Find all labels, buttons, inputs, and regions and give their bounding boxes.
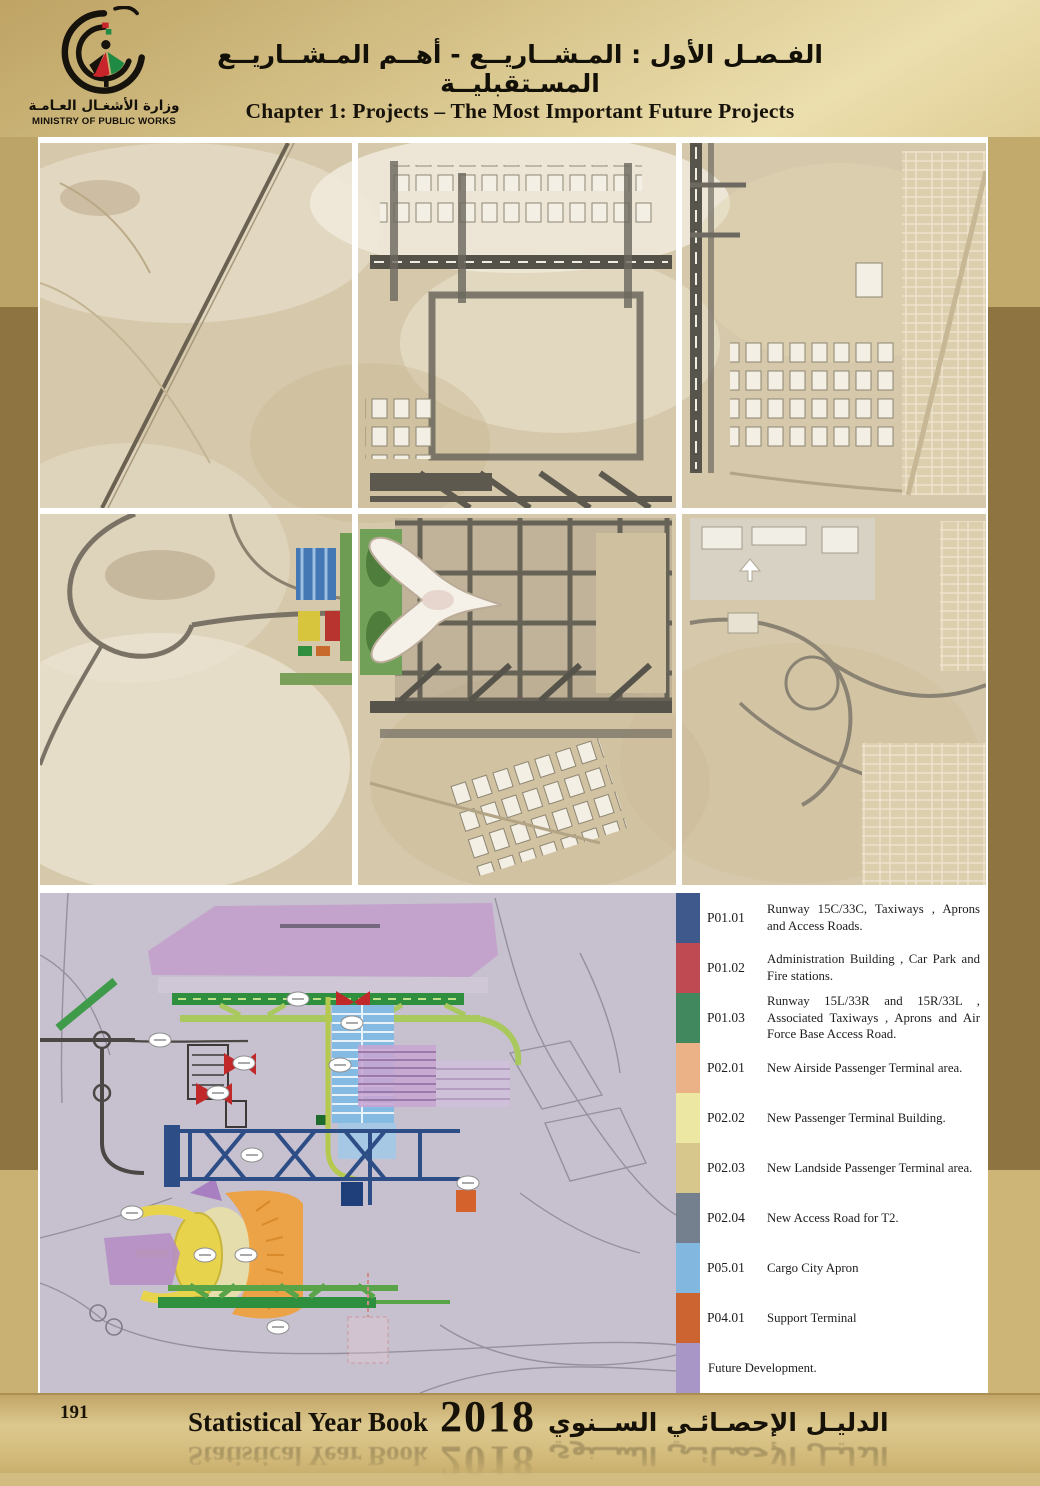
legend-code: P04.01	[700, 1310, 767, 1326]
page-footer: 191 Statistical Year Book 2018 الدليـل ا…	[0, 1393, 1040, 1473]
legend-code: P02.03	[700, 1160, 767, 1176]
legend-label: New Airside Passenger Terminal area.	[767, 1060, 986, 1077]
legend-item: P02.02 New Passenger Terminal Building.	[676, 1093, 986, 1143]
book-year: 2018	[440, 1395, 536, 1439]
legend-label: Administration Building , Car Park and F…	[767, 951, 986, 984]
footer-title-line: Statistical Year Book 2018 الدليـل الإحص…	[188, 1395, 889, 1439]
legend-swatch	[676, 1093, 700, 1143]
legend-item: P02.04 New Access Road for T2.	[676, 1193, 986, 1243]
book-title-arabic: الدليـل الإحصـائـي الســنوي	[548, 1408, 889, 1437]
right-band-bottom	[988, 1170, 1040, 1393]
legend-item: P02.03 New Landside Passenger Terminal a…	[676, 1143, 986, 1193]
legend-item: P01.01 Runway 15C/33C, Taxiways , Aprons…	[676, 893, 986, 943]
legend-item: P01.02 Administration Building , Car Par…	[676, 943, 986, 993]
chapter-title-arabic: الفـصـل الأول : المـشــاريــع - أهــم ال…	[200, 40, 840, 98]
right-band-top	[988, 137, 1040, 307]
legend-item: P04.01 Support Terminal	[676, 1293, 986, 1343]
legend-code: P02.04	[700, 1210, 767, 1226]
legend-swatch	[676, 1193, 700, 1243]
map-region-support-terminal	[456, 1190, 476, 1212]
legend-label: Cargo City Apron	[767, 1260, 986, 1277]
chapter-title-english: Chapter 1: Projects – The Most Important…	[140, 99, 900, 124]
legend-code: P02.02	[700, 1110, 767, 1126]
ministry-logo-icon	[58, 6, 150, 98]
legend-code: P01.03	[700, 1010, 767, 1026]
legend-swatch	[676, 1293, 700, 1343]
legend-swatch	[676, 893, 700, 943]
left-band-top	[0, 137, 38, 307]
legend-swatch	[676, 1143, 700, 1193]
legend-swatch	[676, 993, 700, 1043]
masterplan-map-svg	[40, 893, 676, 1393]
legend-swatch	[676, 943, 700, 993]
legend-label: New Access Road for T2.	[767, 1210, 986, 1227]
yearbook-page: وزارة الأشغـال العـامـة MINISTRY OF PUBL…	[0, 0, 1040, 1471]
legend-item: P05.01 Cargo City Apron	[676, 1243, 986, 1293]
left-band-middle	[0, 307, 38, 1170]
legend-item: P02.01 New Airside Passenger Terminal ar…	[676, 1043, 986, 1093]
page-header: وزارة الأشغـال العـامـة MINISTRY OF PUBL…	[0, 0, 1040, 137]
legend-code: P02.01	[700, 1060, 767, 1076]
legend-code: P01.01	[700, 910, 767, 926]
legend-swatch	[676, 1243, 700, 1293]
footer-title-reflection: Statistical Year Book 2018 الدليـل الإحص…	[188, 1439, 889, 1483]
map-region-access-road-t2	[341, 1182, 363, 1206]
page-content: P01.01 Runway 15C/33C, Taxiways , Aprons…	[38, 137, 988, 1393]
legend-code: P05.01	[700, 1260, 767, 1276]
legend-label: New Landside Passenger Terminal area.	[767, 1160, 986, 1177]
legend-label: Runway 15C/33C, Taxiways , Aprons and Ac…	[767, 901, 986, 934]
legend-item: P01.03 Runway 15L/33R and 15R/33L , Asso…	[676, 993, 986, 1043]
satellite-image-svg	[40, 143, 986, 885]
legend-label: Support Terminal	[767, 1310, 986, 1327]
legend-label: Runway 15L/33R and 15R/33L , Associated …	[767, 993, 986, 1043]
page-number: 191	[60, 1402, 89, 1424]
map-region-landside	[104, 1233, 180, 1285]
legend-label: New Passenger Terminal Building.	[767, 1110, 986, 1127]
masterplan-map	[40, 893, 676, 1393]
legend-item: Future Development.	[676, 1343, 986, 1393]
legend-code: P01.02	[700, 960, 767, 976]
legend-swatch	[676, 1043, 700, 1093]
airport-satellite-image	[40, 143, 986, 885]
left-band-bottom	[0, 1170, 38, 1393]
legend-label: Future Development.	[700, 1360, 986, 1377]
legend-swatch	[676, 1343, 700, 1393]
legend: P01.01 Runway 15C/33C, Taxiways , Aprons…	[676, 893, 986, 1393]
right-band-middle	[988, 307, 1040, 1170]
book-title-english: Statistical Year Book	[188, 1407, 428, 1438]
